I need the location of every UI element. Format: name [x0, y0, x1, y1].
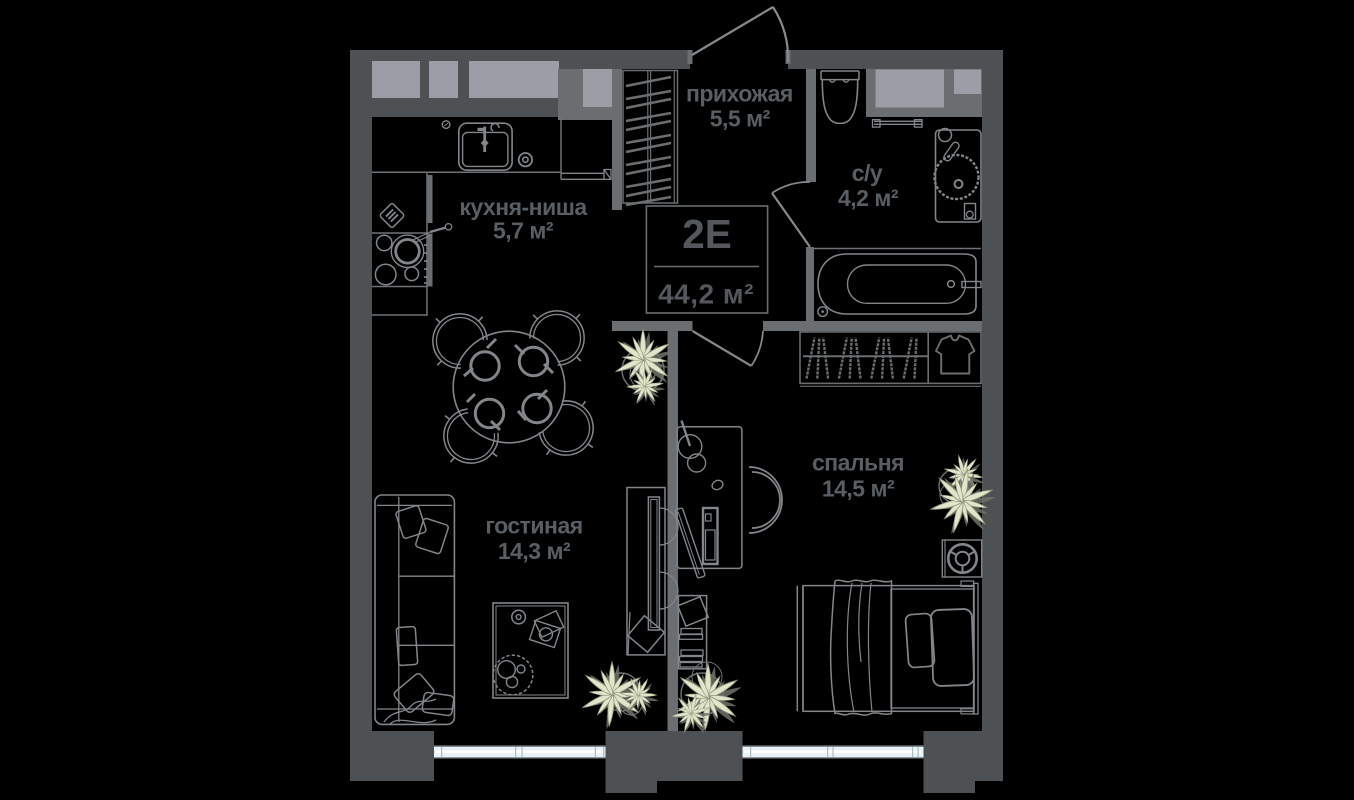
svg-text:5,7 м²: 5,7 м²	[493, 218, 554, 244]
svg-text:5,5 м²: 5,5 м²	[710, 105, 771, 131]
svg-text:14,5 м²: 14,5 м²	[822, 475, 895, 501]
svg-text:прихожая: прихожая	[686, 80, 793, 106]
svg-text:44,2 м²: 44,2 м²	[658, 279, 754, 310]
svg-text:спальня: спальня	[812, 450, 904, 476]
svg-text:гостиная: гостиная	[485, 513, 582, 539]
svg-text:2E: 2E	[682, 211, 732, 257]
svg-text:с/у: с/у	[852, 160, 883, 186]
svg-text:4,2 м²: 4,2 м²	[838, 185, 899, 211]
svg-text:кухня-ниша: кухня-ниша	[459, 194, 587, 220]
svg-text:14,3 м²: 14,3 м²	[498, 538, 571, 564]
